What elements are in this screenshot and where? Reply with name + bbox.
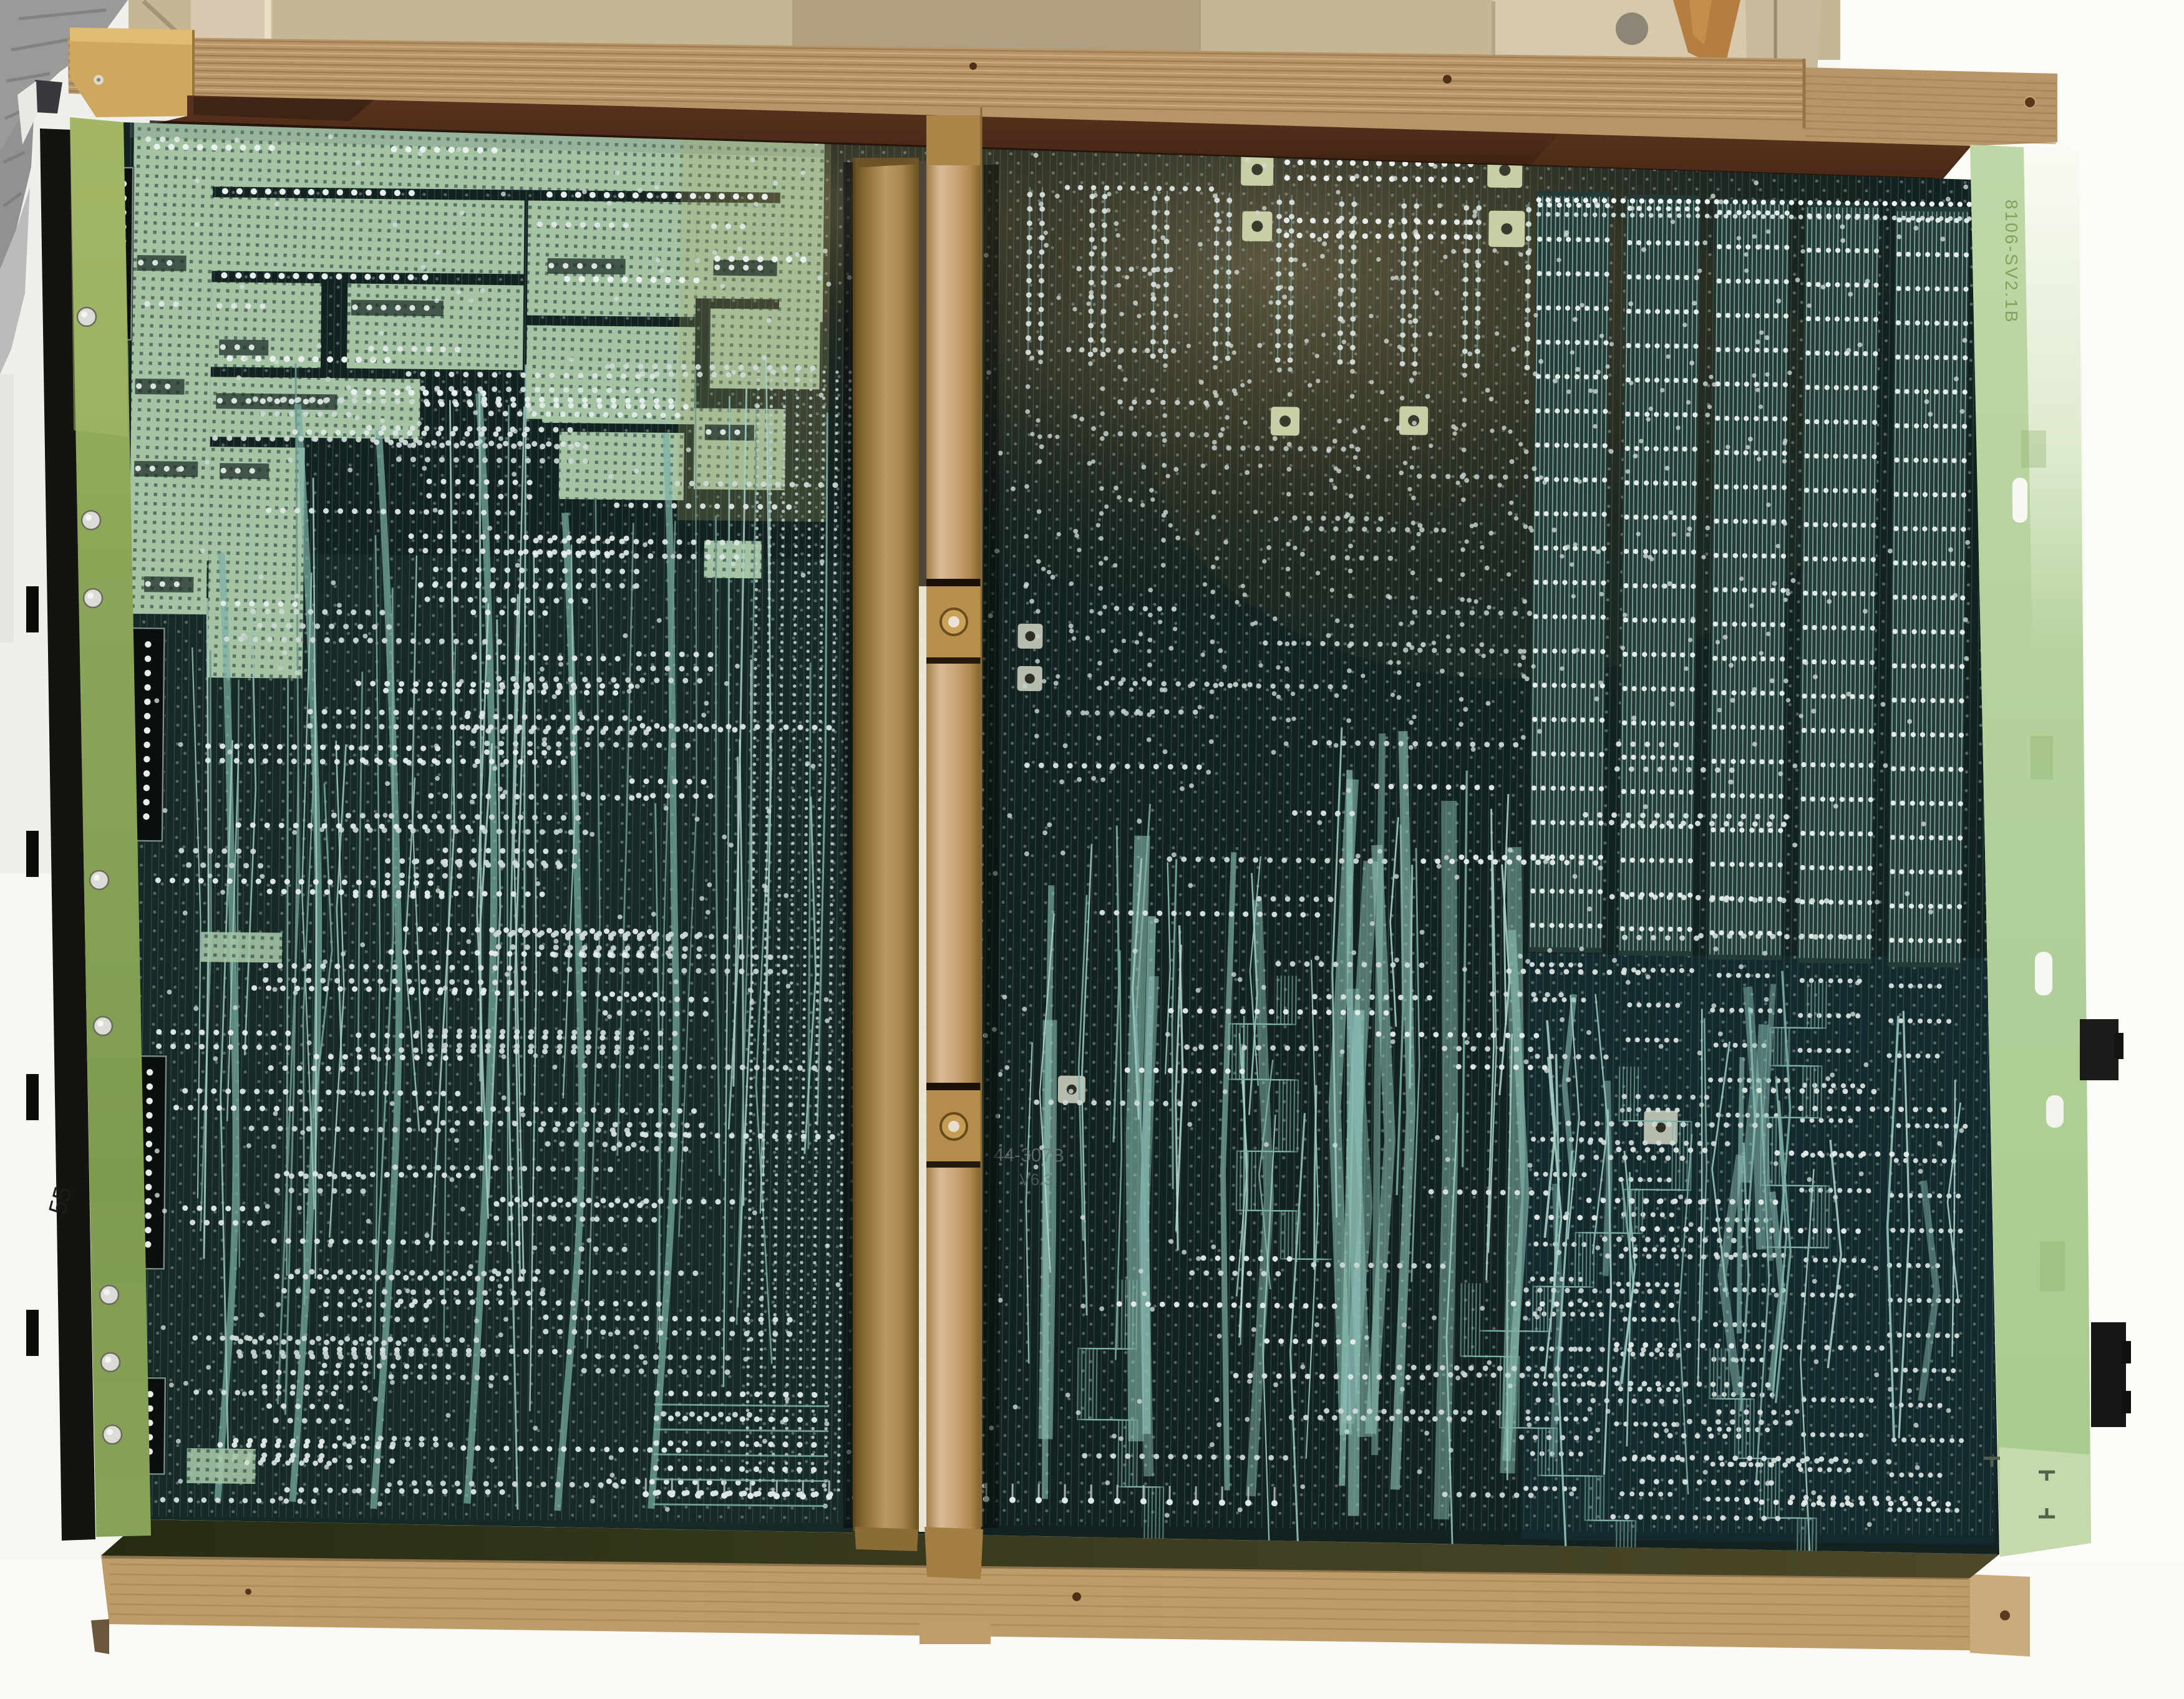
- svg-text:V6.3: V6.3: [1019, 1170, 1053, 1189]
- svg-text:8106-SV2.1B: 8106-SV2.1B: [2002, 200, 2021, 324]
- svg-text:44-307B: 44-307B: [994, 1145, 1065, 1166]
